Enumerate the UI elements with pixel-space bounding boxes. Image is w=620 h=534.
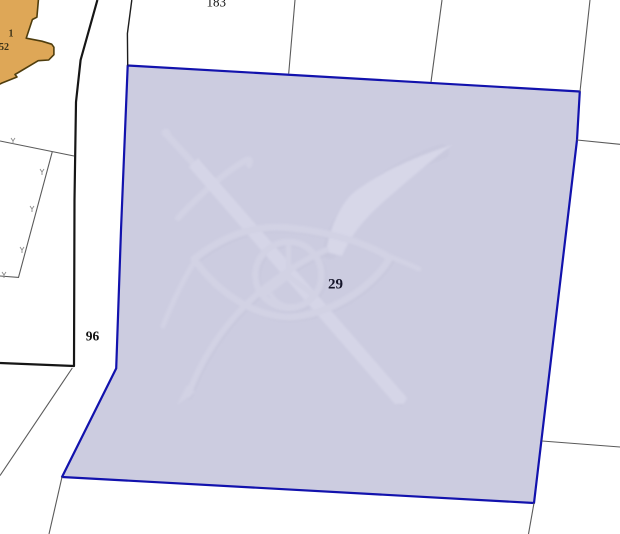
svg-text:1: 1 xyxy=(9,29,14,40)
svg-text:183: 183 xyxy=(207,0,227,10)
svg-text:96: 96 xyxy=(86,329,100,344)
svg-text:29: 29 xyxy=(328,277,343,293)
svg-text:52: 52 xyxy=(0,42,9,53)
